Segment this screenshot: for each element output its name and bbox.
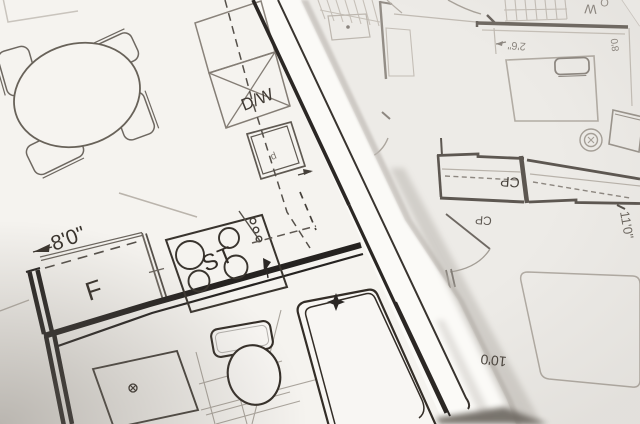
svg-text:10'0: 10'0: [480, 351, 508, 370]
